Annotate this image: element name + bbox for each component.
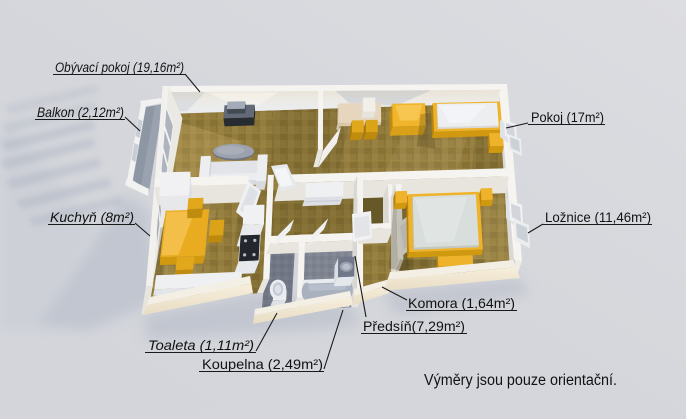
svg-text:Obývací pokoj (19,16m²): Obývací pokoj (19,16m²) xyxy=(55,59,184,75)
svg-text:Výměry jsou pouze orientační.: Výměry jsou pouze orientační. xyxy=(424,372,617,389)
svg-text:Pokoj (17m²): Pokoj (17m²) xyxy=(531,109,604,125)
svg-text:Kuchyň (8m²): Kuchyň (8m²) xyxy=(50,209,134,225)
svg-text:Toaleta (1,11m²): Toaleta (1,11m²) xyxy=(148,337,254,353)
svg-text:Ložnice (11,46m²): Ložnice (11,46m²) xyxy=(545,209,651,225)
svg-text:Balkon (2,12m²): Balkon (2,12m²) xyxy=(37,104,124,120)
svg-text:Komora (1,64m²): Komora (1,64m²) xyxy=(408,295,515,311)
svg-text:Koupelna (2,49m²): Koupelna (2,49m²) xyxy=(202,356,323,372)
svg-text:Předsíň(7,29m²): Předsíň(7,29m²) xyxy=(363,318,465,334)
